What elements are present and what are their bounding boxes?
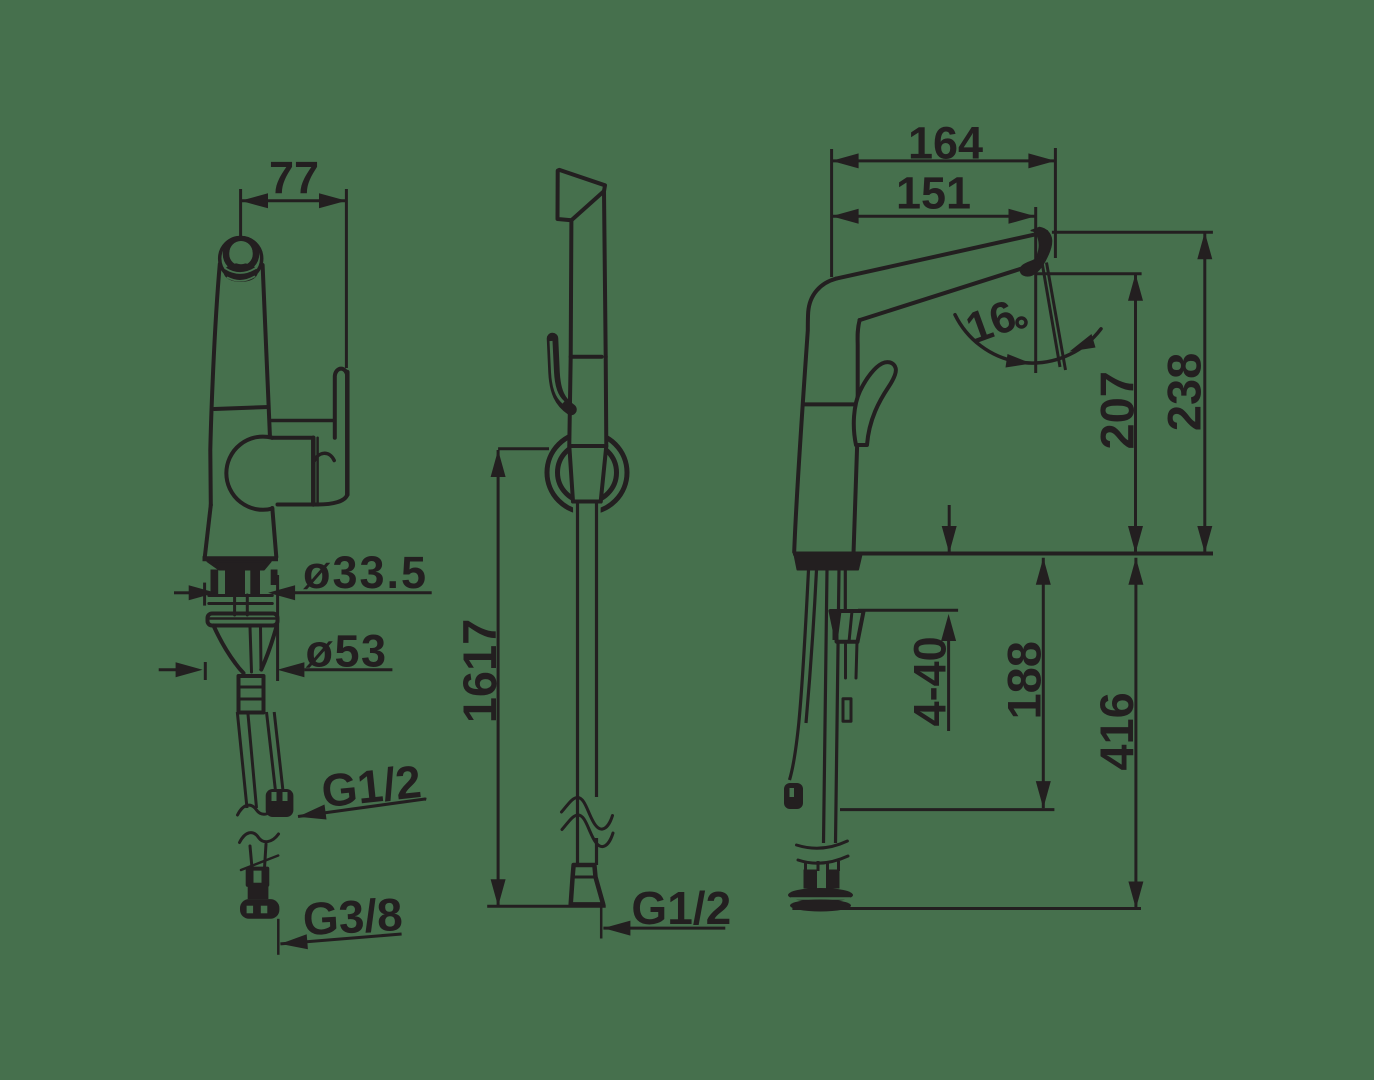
svg-text:238: 238 <box>1158 353 1211 431</box>
svg-text:G1/2: G1/2 <box>631 882 731 934</box>
svg-text:16: 16 <box>960 291 1023 354</box>
svg-text:151: 151 <box>896 168 971 219</box>
svg-text:ø33.5: ø33.5 <box>303 547 428 598</box>
svg-text:77: 77 <box>269 152 319 203</box>
